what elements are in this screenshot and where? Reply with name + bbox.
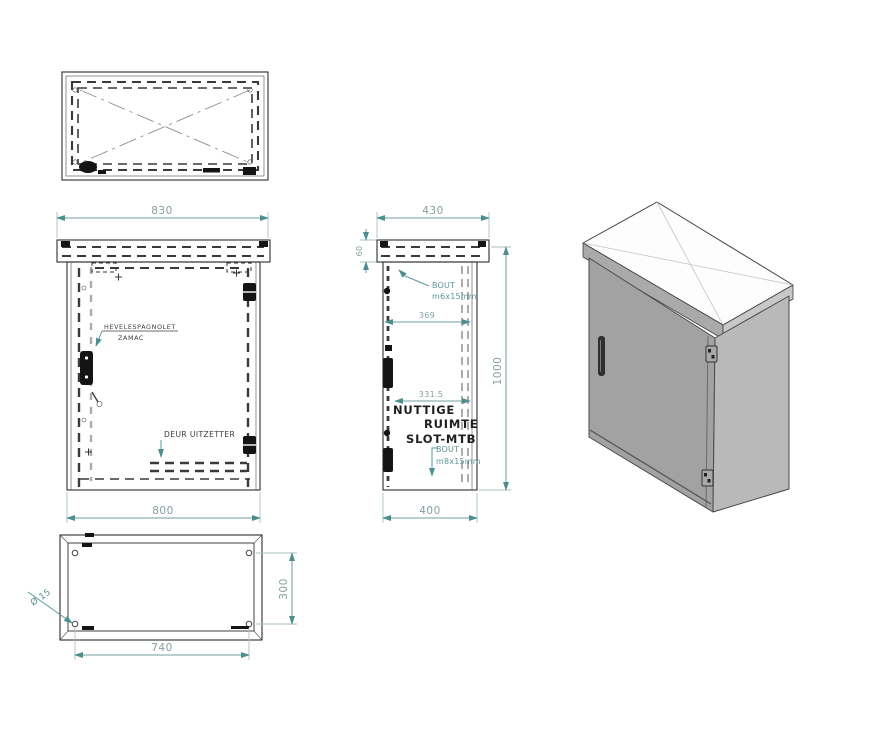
drawing-canvas: 830 — [0, 0, 869, 731]
bottom-hardware-1 — [85, 533, 94, 537]
bottom-view-inner — [68, 543, 254, 631]
iso-hinge-bottom-rivet-1 — [704, 473, 707, 477]
iso-view — [583, 202, 793, 512]
front-view: 830 — [57, 205, 270, 523]
side-dim3315-text: 331.5 — [419, 390, 443, 399]
front-screw-1 — [82, 286, 86, 290]
side-lock-cluster — [383, 358, 393, 388]
front-lid-hardware-right — [259, 241, 268, 247]
bottom-hole-tl — [72, 550, 78, 556]
side-lid — [377, 240, 489, 262]
side-rod-cluster-2 — [383, 448, 393, 472]
bottom-corner-br — [254, 631, 262, 640]
side-note-line1: NUTTIGE — [393, 403, 455, 417]
iso-hinge-bottom-rivet-2 — [708, 479, 711, 483]
bottom-hardware-3 — [231, 626, 249, 629]
side-view: 430 60 BOUT m6x15mm 369 331.5 — [355, 205, 511, 523]
bottom-hardware-4 — [82, 626, 94, 630]
side-dim430-text: 430 — [422, 205, 444, 217]
drawing-sheet: 830 — [0, 0, 869, 731]
side-note-line3: SLOT-MTB — [406, 432, 476, 446]
front-key-ring — [97, 401, 102, 406]
bottom-hole-tr — [246, 550, 252, 556]
front-dim800-text: 800 — [152, 505, 174, 517]
iso-hinge-top-rivet-1 — [708, 349, 711, 353]
side-lid-hardware-left — [380, 241, 388, 247]
side-lid-hardware-right — [478, 241, 486, 247]
top-view-dashed-frame-outer — [72, 82, 258, 170]
bottom-hardware-2 — [82, 543, 92, 547]
bottom-hole-br — [246, 621, 252, 627]
bottom-hole-bl — [72, 621, 78, 627]
bottom-corner-tr — [254, 535, 262, 543]
top-view-screw-bl — [73, 160, 77, 164]
front-lock-dot-2 — [85, 375, 88, 378]
iso-door-handle — [598, 336, 605, 376]
front-key-stem — [92, 392, 98, 402]
side-dim369-text: 369 — [419, 311, 435, 320]
front-lock-body — [80, 351, 93, 385]
top-view — [62, 72, 268, 180]
front-lid — [57, 240, 270, 262]
front-dim830-text: 830 — [151, 205, 173, 217]
side-bolt-top-line2: m6x15mm — [432, 292, 477, 301]
bottom-dim300-text: 300 — [278, 578, 290, 600]
side-rod-block-1 — [385, 345, 392, 351]
top-view-hardware-mid — [203, 168, 220, 173]
bottom-view: Ø 15 740 300 — [28, 533, 297, 660]
front-cross-2 — [233, 270, 240, 277]
side-bolt-top-leader — [399, 270, 429, 286]
side-bolt-bottom-line2: m8x15mm — [436, 457, 481, 466]
front-lock-label-line1: HEVELESPAGNOLET — [104, 323, 176, 331]
side-bolt-bottom-line1: BOUT — [436, 445, 459, 454]
top-view-hardware-left2 — [98, 170, 106, 174]
bottom-corner-bl — [60, 631, 68, 640]
iso-hinge-top-rivet-2 — [712, 355, 715, 359]
iso-hinge-top — [706, 346, 717, 362]
bottom-view-outline — [60, 535, 262, 640]
side-note-line2: RUIMTE — [424, 417, 478, 431]
front-lid-hardware-left — [61, 241, 70, 247]
front-cross-1 — [115, 274, 122, 281]
side-dim400-text: 400 — [419, 505, 441, 517]
top-view-hardware-right — [243, 167, 256, 175]
front-lock-label-leader — [96, 331, 102, 346]
top-view-hardware-left — [79, 161, 97, 173]
iso-hinge-bottom — [702, 470, 713, 486]
side-dim1000-text: 1000 — [492, 357, 504, 386]
bottom-corner-tl — [60, 535, 68, 543]
front-screw-2 — [82, 418, 86, 422]
front-body — [67, 262, 260, 490]
side-bolt-top-line1: BOUT — [432, 281, 455, 290]
bottom-dim740-text: 740 — [151, 642, 173, 654]
front-door-label: DEUR UITZETTER — [164, 430, 235, 439]
top-view-screw-tl — [73, 88, 77, 92]
side-dim60-text: 60 — [355, 246, 364, 257]
side-rod-knob-1 — [384, 288, 390, 294]
side-rod-knob-2 — [384, 430, 390, 436]
top-view-inner-wall — [66, 76, 264, 176]
front-lock-label-line2: ZAMAC — [118, 334, 144, 342]
bottom-hole-label: Ø 15 — [28, 587, 52, 609]
front-lock-dot-1 — [85, 356, 88, 359]
